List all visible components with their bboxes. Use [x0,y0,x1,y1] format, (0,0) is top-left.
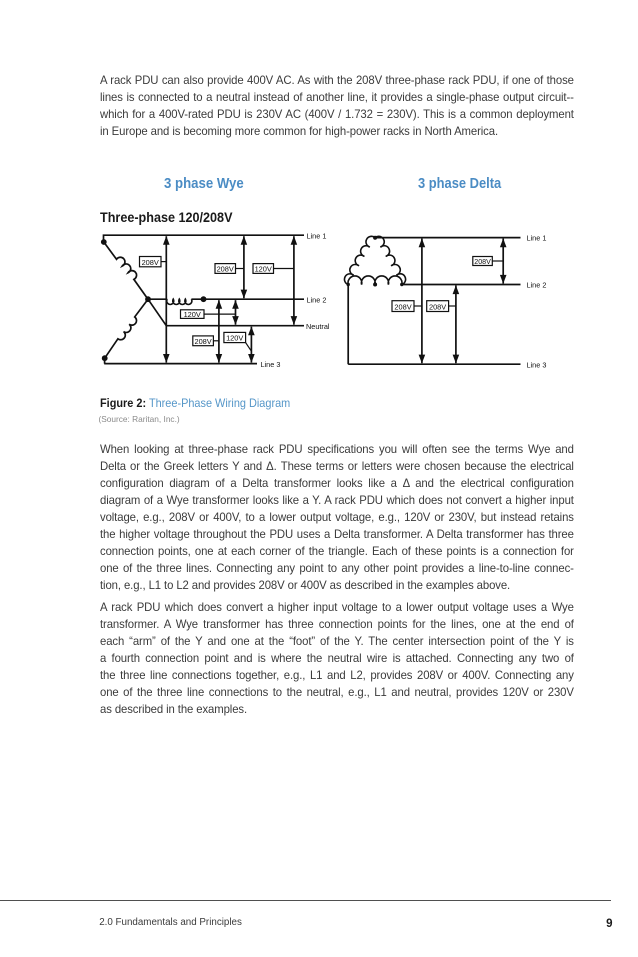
svg-text:Line 1: Line 1 [307,231,327,240]
svg-text:120V: 120V [226,334,243,343]
svg-text:Line 1: Line 1 [527,234,547,243]
svg-text:208V: 208V [194,337,211,346]
svg-text:120V: 120V [184,310,201,319]
svg-text:208V: 208V [429,302,446,311]
svg-text:208V: 208V [217,265,234,274]
svg-text:208V: 208V [142,258,159,267]
svg-text:Neutral: Neutral [306,322,330,331]
svg-text:Line 3: Line 3 [527,360,547,369]
svg-text:Line 3: Line 3 [261,360,281,369]
svg-text:120V: 120V [255,265,272,274]
svg-text:208V: 208V [394,302,411,311]
svg-text:Line 2: Line 2 [307,295,327,304]
svg-text:208V: 208V [474,258,491,266]
svg-text:Line 2: Line 2 [527,281,547,290]
